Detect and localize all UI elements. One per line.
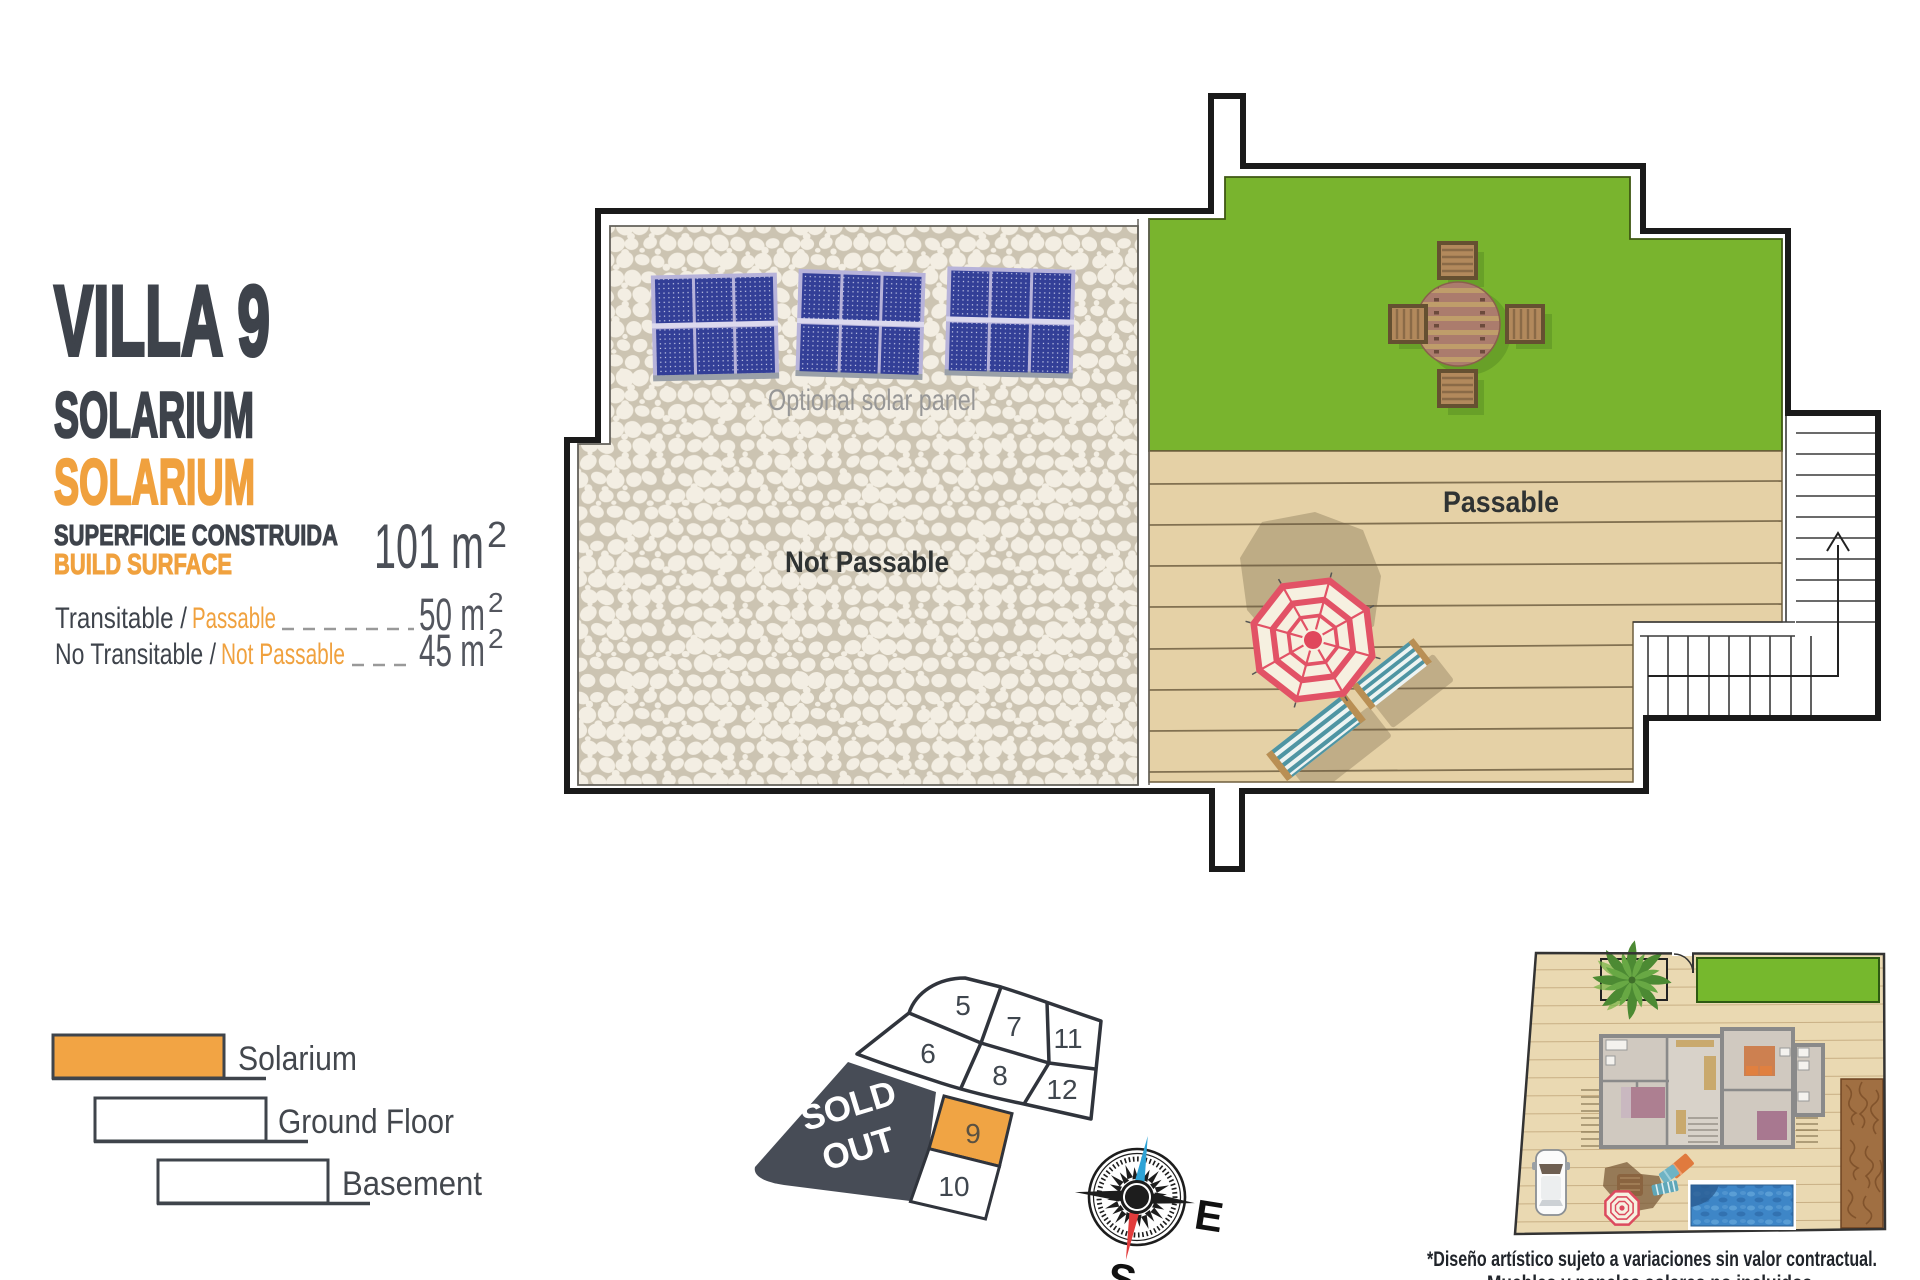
- svg-text:6: 6: [920, 1038, 936, 1069]
- svg-text:E: E: [1192, 1190, 1227, 1241]
- svg-text:Transitable /: Transitable /: [55, 602, 188, 635]
- svg-text:Ground Floor: Ground Floor: [278, 1103, 454, 1141]
- svg-text:2: 2: [488, 623, 504, 654]
- svg-text:Basement: Basement: [342, 1165, 482, 1203]
- svg-text:VILLA 9: VILLA 9: [54, 265, 270, 376]
- svg-text:5: 5: [955, 990, 971, 1021]
- svg-text:Not Passable: Not Passable: [221, 638, 345, 671]
- svg-text:Passable: Passable: [1443, 486, 1559, 519]
- svg-text:SUPERFICIE CONSTRUIDA: SUPERFICIE CONSTRUIDA: [54, 520, 338, 552]
- svg-text:9: 9: [965, 1118, 981, 1149]
- svg-text:101 m: 101 m: [374, 512, 484, 582]
- svg-text:SOLARIUM: SOLARIUM: [54, 379, 254, 451]
- svg-text:SOLARIUM: SOLARIUM: [54, 446, 255, 518]
- svg-text:45 m: 45 m: [419, 625, 485, 676]
- svg-text:2: 2: [488, 587, 504, 618]
- svg-text:Not Passable: Not Passable: [785, 546, 949, 579]
- svg-text:8: 8: [992, 1060, 1008, 1091]
- svg-text:*Diseño artístico sujeto a var: *Diseño artístico sujeto a variaciones s…: [1427, 1248, 1877, 1271]
- svg-text:Optional solar panel: Optional solar panel: [768, 384, 976, 417]
- svg-text:No Transitable /: No Transitable /: [55, 638, 217, 671]
- svg-text:Solarium: Solarium: [238, 1040, 357, 1078]
- svg-text:Passable: Passable: [192, 602, 276, 635]
- svg-text:2: 2: [487, 514, 507, 555]
- svg-text:S: S: [1105, 1253, 1140, 1280]
- svg-text:10: 10: [938, 1171, 969, 1202]
- svg-text:12: 12: [1046, 1074, 1077, 1105]
- svg-text:7: 7: [1006, 1011, 1022, 1042]
- svg-text:Muebles y paneles solares no i: Muebles y paneles solares no incluidos.: [1487, 1272, 1817, 1280]
- svg-text:BUILD SURFACE: BUILD SURFACE: [54, 549, 232, 581]
- svg-text:11: 11: [1053, 1023, 1082, 1054]
